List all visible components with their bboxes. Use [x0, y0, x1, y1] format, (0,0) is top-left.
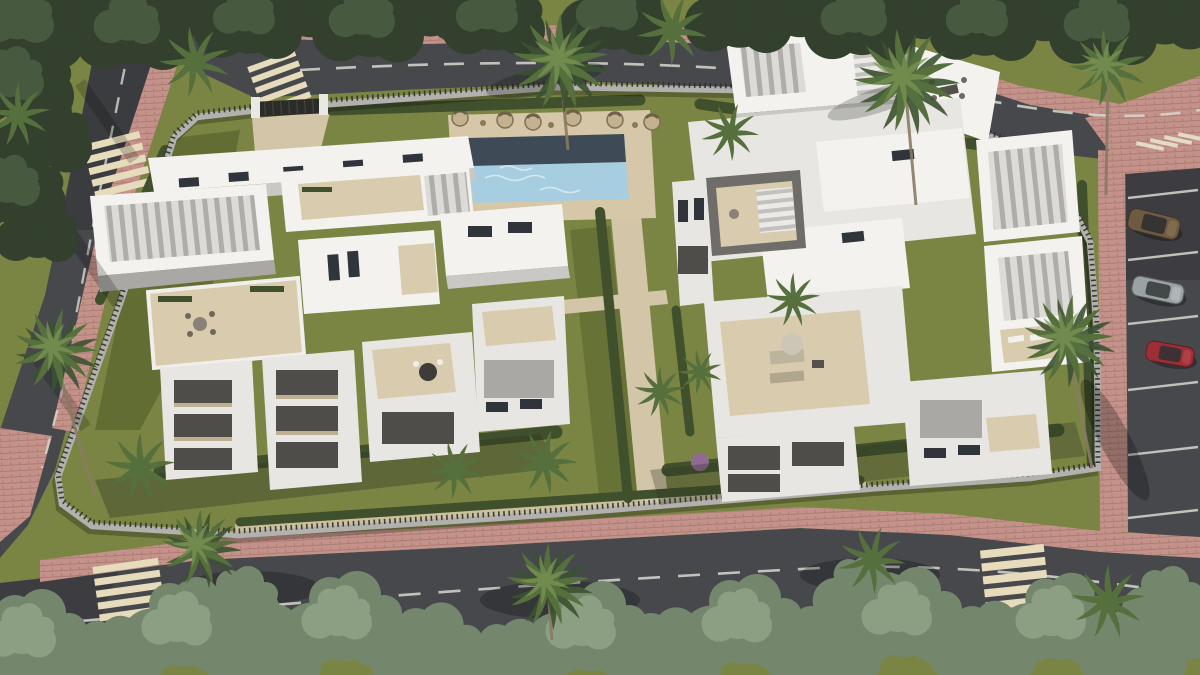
terrace-se — [986, 414, 1040, 452]
gate-pillar-left — [251, 97, 260, 118]
chair — [437, 359, 443, 365]
patio-chair — [209, 311, 215, 317]
tower-terrace — [398, 243, 438, 295]
loggia-e — [484, 360, 554, 398]
aerial-render — [0, 0, 1200, 675]
tree-highlight — [821, 0, 887, 36]
daybed — [644, 114, 660, 130]
courtyard-table — [729, 209, 739, 219]
gate-pillar-right — [319, 94, 328, 115]
window — [958, 445, 980, 455]
window — [520, 399, 542, 409]
side-table — [632, 122, 638, 128]
pergola-louvers-e1 — [988, 144, 1068, 230]
terrace-e-low — [482, 306, 556, 346]
balcony-recesses-s — [276, 370, 338, 468]
side-table — [480, 120, 486, 126]
patio-chair — [210, 329, 216, 335]
daybed — [565, 110, 581, 126]
daybed — [497, 112, 513, 128]
courtyard-stairs — [756, 187, 796, 233]
coffee-table — [812, 360, 824, 368]
bright-roof-1 — [816, 128, 970, 212]
parasol — [781, 333, 803, 355]
window — [694, 198, 704, 220]
tree-highlight — [576, 0, 638, 31]
roof-planter — [302, 187, 332, 192]
patio-chair — [185, 313, 191, 319]
loggia-se — [920, 400, 982, 438]
tree-highlight — [0, 0, 54, 43]
patio-table — [193, 317, 207, 331]
tree-highlight — [329, 0, 395, 38]
patio-chair — [187, 331, 193, 337]
balcony-recess-se — [382, 412, 454, 444]
terrace-court-s — [720, 310, 870, 416]
pool-shadow-edge — [468, 134, 626, 166]
pergola-louvers-mid — [424, 172, 470, 216]
terrace-planter — [250, 286, 284, 292]
window — [486, 402, 508, 412]
daybed — [607, 112, 623, 128]
chair — [413, 361, 419, 367]
window — [468, 226, 492, 237]
terrace-se — [372, 343, 456, 399]
chair — [961, 77, 967, 83]
side-table — [548, 122, 554, 128]
daybed — [525, 114, 541, 130]
round-table — [419, 363, 437, 381]
window — [678, 200, 688, 222]
window — [924, 448, 946, 458]
window — [508, 222, 532, 233]
tree-highlight — [456, 0, 518, 33]
tree-highlight — [213, 0, 275, 35]
terrace-planter — [158, 296, 192, 302]
balcony-recess-w — [678, 246, 708, 274]
daybed — [452, 110, 468, 126]
balcony-recesses-sw — [174, 380, 232, 470]
roof-east-wing — [440, 204, 568, 276]
render-viewport — [0, 0, 1200, 675]
